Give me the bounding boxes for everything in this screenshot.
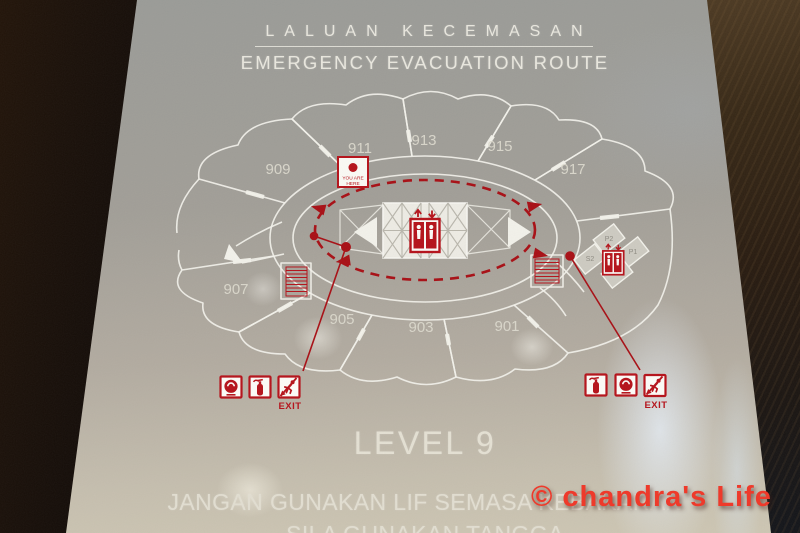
- emergency-exit-icon: [645, 375, 666, 396]
- fire-alarm-icon: [221, 377, 242, 398]
- you-are-here-line1: YOU ARE: [342, 176, 363, 182]
- route-arrow-left-top: [310, 201, 327, 215]
- room-label-907: 907: [223, 281, 248, 298]
- you-are-here-line2: HERE: [346, 181, 359, 187]
- room-label-901: 901: [494, 318, 519, 335]
- room-901-outline: [444, 305, 568, 381]
- room-903-outline: [340, 315, 456, 385]
- fire-extinguisher-icon: [250, 377, 271, 398]
- lift-label-s2: S2: [586, 256, 595, 263]
- safety-icons-right: EXIT: [586, 375, 668, 412]
- left-exit-corridor: [236, 222, 284, 263]
- lift-label-p2: P2: [605, 236, 614, 243]
- room-label-909: 909: [265, 161, 290, 178]
- right-direction-triangle: [508, 217, 531, 247]
- left-gap-outline: [177, 179, 199, 270]
- room-label-915: 915: [487, 138, 512, 155]
- route-arrow-right-top: [527, 199, 543, 213]
- fire-alarm-icon: [616, 375, 637, 396]
- room-label-911: 911: [348, 140, 372, 157]
- left-exit-tip: [224, 244, 243, 263]
- level-label: LEVEL 9: [50, 425, 800, 462]
- room-917-outline: [535, 139, 673, 221]
- fire-extinguisher-icon: [586, 375, 607, 396]
- room-label-903: 903: [408, 319, 433, 336]
- sign-photo: LALUAN KECEMASAN EMERGENCY EVACUATION RO…: [0, 0, 800, 533]
- lift-label-p1: P1: [629, 249, 638, 256]
- safety-icons-left: EXIT: [221, 377, 302, 413]
- left-direction-triangle: [354, 217, 377, 247]
- room-905-outline: [239, 293, 372, 371]
- right-stair-outline: [531, 255, 563, 287]
- room-label-913: 913: [411, 132, 436, 149]
- staircase-hatch-left: [286, 267, 307, 296]
- room-label-905: 905: [329, 311, 354, 328]
- warning-line2: SILA GUNAKAN TANGGA: [50, 518, 800, 533]
- exit-label-left: EXIT: [278, 401, 301, 412]
- emergency-exit-icon: [279, 377, 300, 398]
- you-are-here-marker: YOU ARE HERE: [338, 157, 368, 187]
- room-label-917: 917: [560, 161, 585, 178]
- exit-label-right: EXIT: [644, 400, 667, 411]
- watermark: © chandra's Life: [531, 481, 772, 514]
